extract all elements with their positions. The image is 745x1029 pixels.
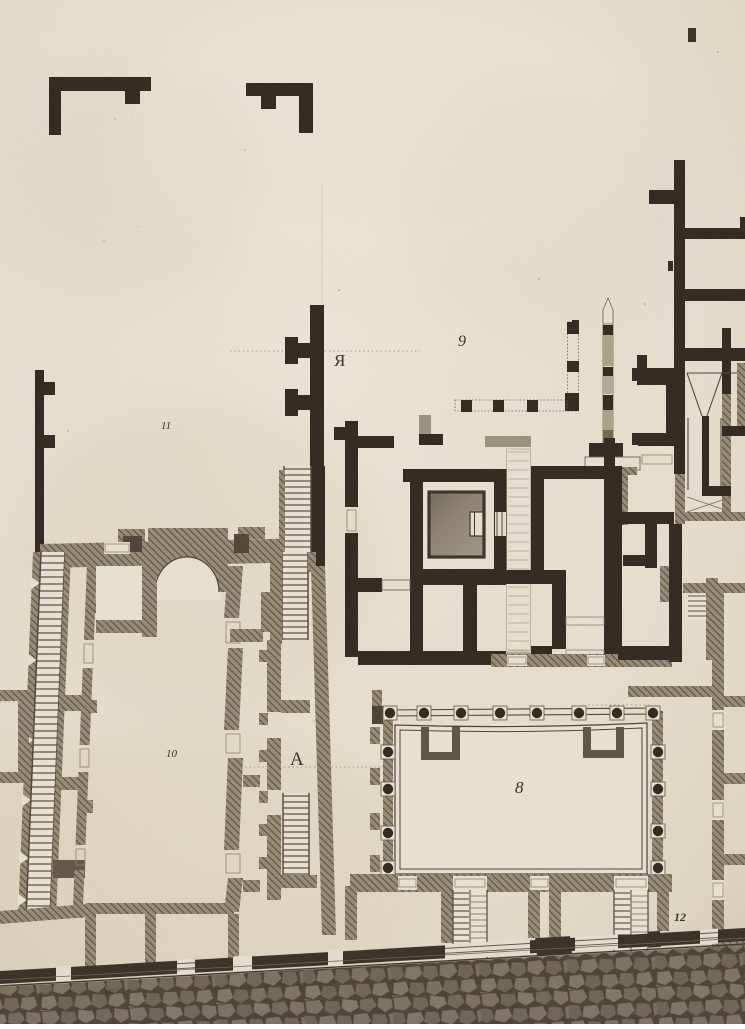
svg-text:8: 8 (515, 778, 524, 797)
svg-text:10: 10 (166, 748, 178, 760)
svg-text:11: 11 (161, 420, 171, 432)
svg-text:16: 16 (104, 988, 114, 998)
svg-text:9: 9 (458, 333, 466, 350)
svg-text:Я: Я (334, 351, 345, 370)
svg-text:A: A (290, 749, 304, 770)
svg-text:12: 12 (674, 910, 686, 924)
